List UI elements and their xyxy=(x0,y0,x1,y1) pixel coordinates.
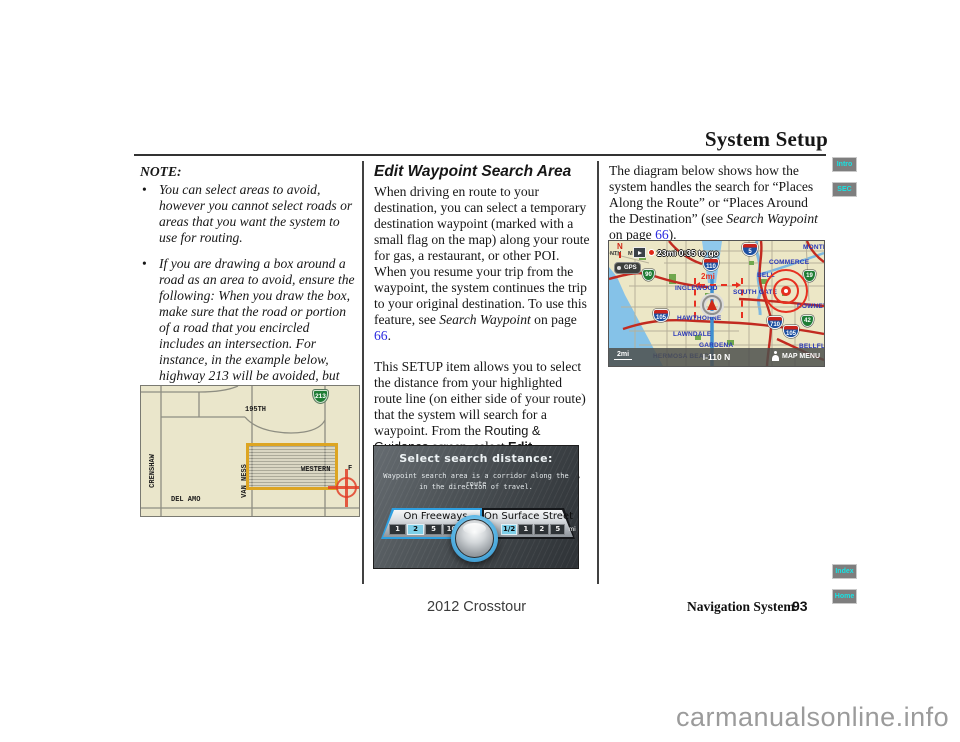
note-bullet-text: You can select areas to avoid, however y… xyxy=(159,182,352,245)
screen-title: Select search distance: xyxy=(374,452,578,465)
city-label: LAWNDALE xyxy=(673,331,711,338)
street-label-195th: 195TH xyxy=(245,406,266,414)
compass-stem xyxy=(619,252,621,258)
unit-label: mi xyxy=(568,526,576,533)
screen-subtitle-line2: in the direction of travel. xyxy=(374,483,578,491)
column-divider xyxy=(362,161,364,584)
tab-home[interactable]: Home xyxy=(832,589,857,604)
footer-model-name: 2012 Crosstour xyxy=(427,599,526,615)
map-bottom-bar: 2mi I-110 N MAP MENU xyxy=(609,348,824,366)
selector-knob-highlight xyxy=(463,523,486,534)
city-label: MONTEB xyxy=(803,244,825,251)
crosshair-horizontal-line xyxy=(328,486,360,489)
page-link-66[interactable]: 66 xyxy=(374,328,388,343)
city-label: HAWTHORNE xyxy=(677,315,721,322)
footer-section-name: Navigation System xyxy=(687,599,795,615)
text-run: on page xyxy=(531,312,577,327)
distance-option[interactable]: 5 xyxy=(425,524,442,535)
watermark-text: carmanualsonline.info xyxy=(676,702,949,733)
on-surface-street-label: On Surface Street xyxy=(482,511,575,522)
corridor-width-label: 2mi xyxy=(701,272,715,281)
compass-n-label: N xyxy=(617,242,623,251)
street-label-del-amo: DEL AMO xyxy=(171,496,200,504)
paragraph: The diagram below shows how the system h… xyxy=(609,163,827,243)
tab-index[interactable]: Index xyxy=(832,564,857,579)
map-menu-label: MAP MENU xyxy=(782,353,820,360)
vehicle-position-icon xyxy=(702,295,722,315)
destination-search-ring-center xyxy=(781,286,791,296)
tab-intro[interactable]: Intro xyxy=(832,157,857,172)
city-label: INGLEWOOD xyxy=(675,285,718,292)
text-run-italic: Search Waypoint xyxy=(439,312,531,327)
text-run: . xyxy=(388,328,391,343)
trip-status-text: 23mi 0:35 to go xyxy=(657,248,719,258)
note-bullet: You can select areas to avoid, however y… xyxy=(140,182,356,246)
corridor-right-dashed-line xyxy=(741,278,743,318)
page-title: System Setup xyxy=(560,127,828,152)
manual-page: System Setup NOTE: You can select areas … xyxy=(0,0,960,742)
map-menu-button[interactable]: MAP MENU xyxy=(772,351,820,361)
route-arrow-icon xyxy=(633,247,646,258)
diagram-column: The diagram below shows how the system h… xyxy=(609,163,827,243)
street-label-van-ness: VAN NESS xyxy=(241,455,249,507)
intersection-crosshair-icon xyxy=(336,477,357,498)
avoid-area-map: 195TH CRENSHAW VAN NESS WESTERN F DEL AM… xyxy=(140,385,360,517)
selector-knob[interactable] xyxy=(451,515,498,562)
distance-option[interactable]: 2 xyxy=(534,524,549,535)
trip-status: 23mi 0:35 to go xyxy=(633,247,719,258)
surface-distance-row: 1/2 1 2 5 mi xyxy=(501,524,576,535)
nav-map: 2mi NTH ME INGLEWOOD HAWTHORNE LAWNDALE … xyxy=(608,240,825,367)
distance-option[interactable]: 2 xyxy=(407,524,424,535)
select-distance-screen: Select search distance: Waypoint search … xyxy=(373,445,579,569)
note-heading: NOTE: xyxy=(140,163,356,180)
paragraph: When driving en route to your destinatio… xyxy=(374,184,590,344)
map-menu-person-icon xyxy=(772,351,779,361)
text-run: This SETUP item allows you to select the… xyxy=(374,359,586,438)
footer-page-number: 93 xyxy=(792,598,808,614)
distance-option[interactable]: 1 xyxy=(389,524,406,535)
tab-sec[interactable]: SEC xyxy=(832,182,857,197)
street-label-f: F xyxy=(348,465,352,473)
distance-option[interactable]: 5 xyxy=(550,524,565,535)
column-divider xyxy=(597,161,599,584)
waypoint-dot-icon xyxy=(648,249,655,256)
header-rule xyxy=(134,154,826,156)
compass-north-icon: N xyxy=(617,243,623,258)
street-label-western: WESTERN xyxy=(301,466,330,474)
text-run: When driving en route to your destinatio… xyxy=(374,184,590,327)
city-label: COMMERCE xyxy=(769,259,809,266)
street-label-crenshaw: CRENSHAW xyxy=(149,445,157,497)
gps-indicator: GPS xyxy=(614,262,641,274)
arrow-glyph xyxy=(638,251,642,255)
distance-option[interactable]: 1 xyxy=(518,524,533,535)
vehicle-arrow xyxy=(707,299,717,310)
article-heading: Edit Waypoint Search Area xyxy=(374,163,590,181)
corridor-arrow-right xyxy=(736,282,741,288)
distance-option[interactable]: 1/2 xyxy=(501,524,517,535)
text-run-italic: Search Waypoint xyxy=(726,211,818,226)
